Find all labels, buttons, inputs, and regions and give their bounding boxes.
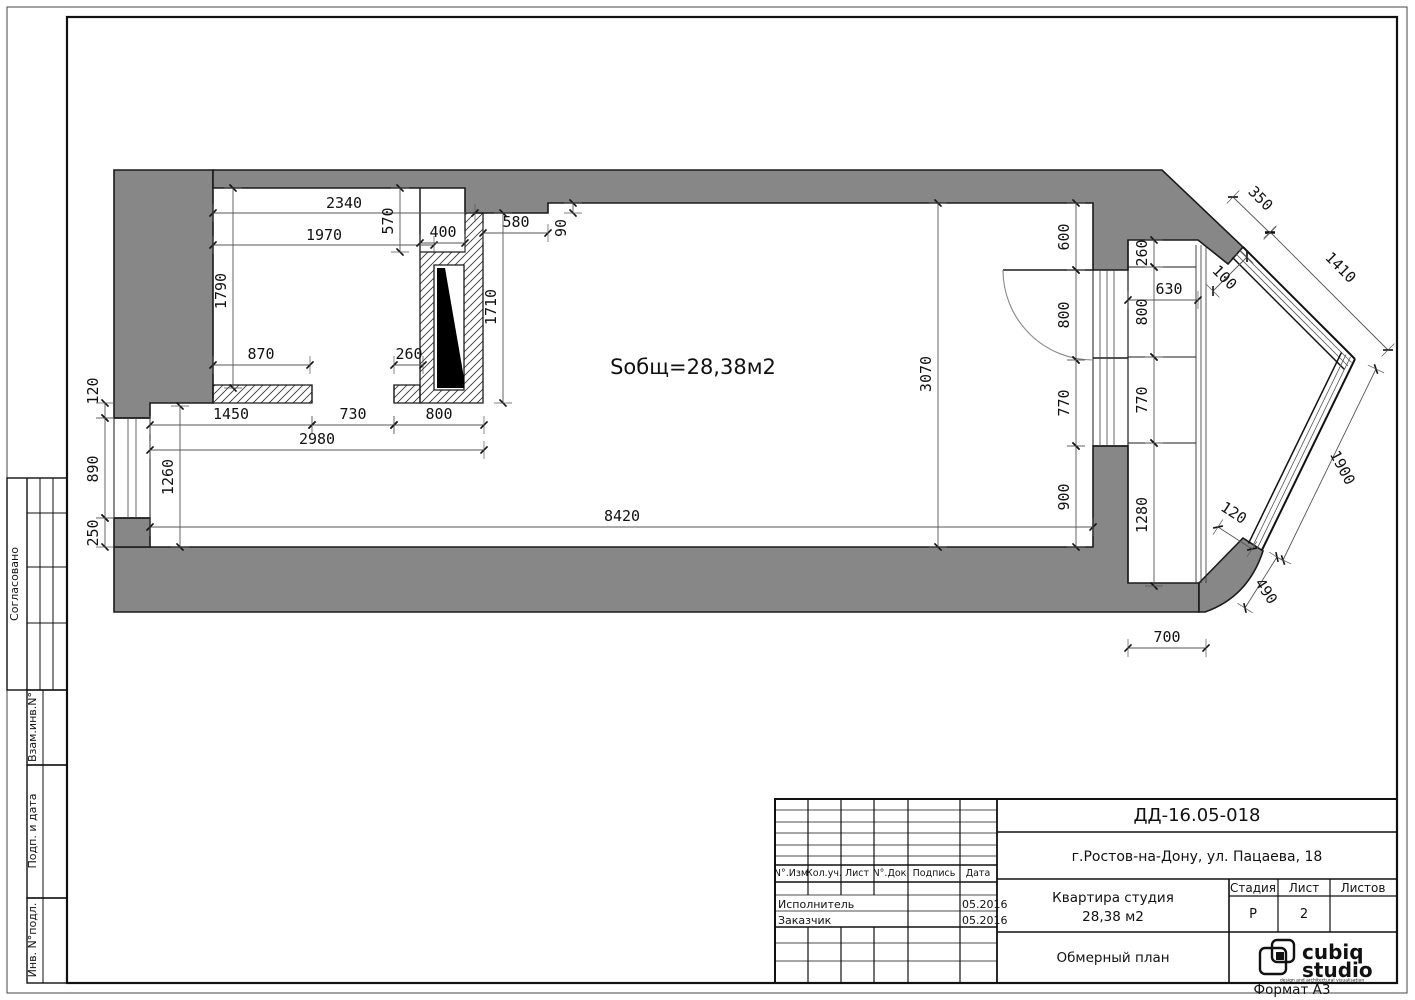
dimension-label: 770 — [1133, 386, 1151, 413]
rev-header-data: Дата — [966, 868, 991, 879]
bay-window-glazing — [1233, 247, 1356, 550]
rev-row-role: Исполнитель — [778, 898, 854, 911]
object-address: г.Ростов-на-Дону, ул. Пацаева, 18 — [1072, 849, 1323, 865]
stage-value: Р — [1249, 907, 1257, 922]
dimension-label: 770 — [1055, 389, 1073, 416]
room-area-label: Sобщ=28,38м2 — [610, 355, 776, 379]
object-name-line1: Квартира студия — [1052, 890, 1174, 906]
stamp-approved: Согласовано — [8, 547, 21, 621]
dimension-label: 800 — [1133, 298, 1151, 325]
vent-shaft-wedge — [437, 268, 464, 388]
dimension-label: 400 — [429, 223, 456, 241]
dimension-label: 260 — [1133, 239, 1151, 266]
revision-table — [775, 799, 997, 983]
logo-overlap-icon — [1276, 952, 1284, 960]
dimension-label: 890 — [84, 455, 102, 482]
dimension-label: 1900 — [1326, 447, 1359, 487]
dimension-label: 730 — [339, 405, 366, 423]
dimension-label: 120 — [84, 377, 102, 404]
sheets-label: Листов — [1341, 881, 1386, 895]
floor-plan-sheet: Sобщ=28,38м2 234019705704005809017908702… — [0, 0, 1415, 1000]
dimension-label: 800 — [425, 405, 452, 423]
dimension-label: 260 — [395, 345, 422, 363]
dimension-label: 250 — [84, 519, 102, 546]
rev-row-role: Заказчик — [778, 914, 832, 927]
page-border — [7, 7, 1407, 993]
dimension-line — [1283, 369, 1376, 560]
wall-left-stub — [114, 518, 150, 547]
dimension-label: 870 — [247, 345, 274, 363]
rev-row-date: 05.2016 — [962, 898, 1008, 911]
rev-header-dok: N°.Док. — [873, 868, 910, 879]
stamp-vzam: Взам.инв.N° — [26, 692, 39, 762]
dimension-label: 1450 — [213, 405, 249, 423]
format-label: Формат А3 — [1254, 982, 1331, 998]
dimension-label: 1280 — [1133, 497, 1151, 533]
rev-header-list: Лист — [845, 868, 870, 879]
logo-cubiq-studio: cubiq studio design and architectural vi… — [1260, 940, 1373, 984]
dimension-label: 600 — [1055, 223, 1073, 250]
wall-bottom-band — [114, 446, 1199, 612]
dimension-line — [1368, 365, 1384, 373]
rev-row-date: 05.2016 — [962, 914, 1008, 927]
dimension-label: 700 — [1153, 628, 1180, 646]
wall-left-mass — [114, 170, 213, 418]
dimension-label: 630 — [1155, 280, 1182, 298]
partition-right — [394, 385, 420, 403]
rev-header-podpis: Подпись — [913, 868, 956, 879]
left-window — [114, 418, 150, 518]
rev-header-koluch: Кол.уч. — [806, 868, 842, 879]
dimension-label: 1260 — [159, 459, 177, 495]
dimension-label: 3070 — [917, 356, 935, 392]
stamp-podp: Подп. и дата — [26, 794, 39, 869]
drawing-frame — [67, 17, 1397, 983]
dimension-label: 120 — [1217, 498, 1250, 528]
wall-top-band — [213, 170, 1243, 270]
partition-door-opening — [312, 385, 394, 403]
balcony-door-window — [1003, 270, 1128, 446]
dimension-label: 2980 — [299, 430, 335, 448]
door-swing-arc — [1003, 270, 1093, 360]
dimension-label: 1710 — [482, 289, 500, 325]
sheet-value: 2 — [1300, 907, 1308, 922]
dimension-label: 350 — [1245, 183, 1277, 215]
stamp-inv: Инв. N°подл. — [26, 903, 39, 978]
document-code: ДД-16.05-018 — [1133, 805, 1260, 826]
dimension-label: 1410 — [1321, 248, 1359, 286]
sheet-label: Лист — [1289, 881, 1319, 895]
rev-header-izm: N°.Изм — [774, 868, 808, 879]
dimension-label: 490 — [1251, 575, 1281, 608]
drawing-name: Обмерный план — [1056, 950, 1169, 966]
dimension-label: 900 — [1055, 483, 1073, 510]
dimension-label: 1790 — [212, 273, 230, 309]
dimension-label: 90 — [552, 219, 570, 237]
dimension-label: 570 — [379, 207, 397, 234]
stage-label: Стадия — [1230, 881, 1276, 895]
dimension-label: 2340 — [326, 194, 362, 212]
dimension-label: 8420 — [604, 507, 640, 525]
drawing-sheet: Sобщ=28,38м2 234019705704005809017908702… — [0, 0, 1415, 1000]
dimension-label: 800 — [1055, 301, 1073, 328]
dimension-label: 1970 — [306, 226, 342, 244]
object-name-line2: 28,38 м2 — [1082, 909, 1144, 925]
